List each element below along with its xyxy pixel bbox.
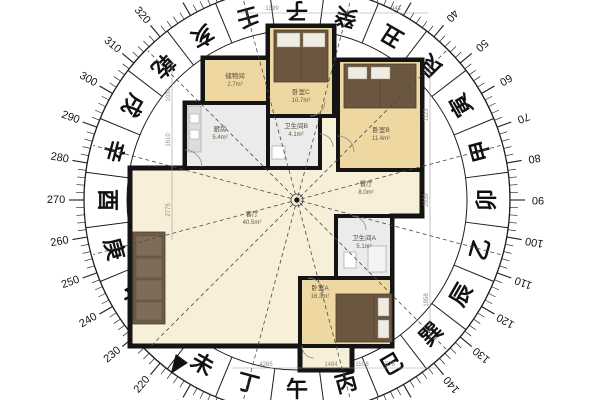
center-point-icon bbox=[294, 197, 299, 202]
tick bbox=[440, 36, 445, 42]
mountain-character: 亥 bbox=[186, 19, 218, 53]
tick bbox=[455, 52, 461, 57]
tick bbox=[98, 103, 105, 107]
tick bbox=[485, 300, 492, 304]
degree-label: 260 bbox=[50, 234, 70, 249]
bed-bedroom-b bbox=[344, 64, 416, 108]
tick bbox=[508, 230, 516, 231]
label-bathroom-a-name: 卫生间A bbox=[352, 233, 377, 242]
segment-divider bbox=[100, 118, 140, 134]
floorplan: 储物间 2.7m² 卧室C 10.7m² 厨房 5.4m² 卫生间B 4.1m²… bbox=[130, 6, 438, 370]
tick bbox=[180, 381, 184, 388]
tick bbox=[384, 0, 387, 5]
degree-label: 290 bbox=[60, 109, 81, 127]
tick bbox=[207, 0, 210, 5]
tick bbox=[81, 244, 89, 246]
tick bbox=[485, 96, 492, 100]
degree-label: 250 bbox=[60, 274, 81, 292]
segment-divider bbox=[466, 172, 509, 178]
tick bbox=[95, 110, 102, 113]
degree-label: 140 bbox=[441, 374, 462, 396]
tick bbox=[488, 293, 495, 297]
label-kitchen-name: 厨房 bbox=[214, 124, 227, 133]
label-bedroom-b-name: 卧室B bbox=[372, 125, 389, 134]
degree-label: 60 bbox=[497, 71, 514, 88]
tick bbox=[143, 41, 149, 47]
degree-label: 270 bbox=[47, 194, 65, 206]
dim-bottom-3: 1598 bbox=[355, 362, 369, 368]
dim-left-3: 2775 bbox=[166, 203, 172, 217]
tick bbox=[100, 86, 113, 94]
segment-divider bbox=[466, 222, 509, 228]
label-bathroom-b-name: 卫生间B bbox=[284, 121, 308, 130]
tick bbox=[481, 86, 494, 94]
dim-top-2: 941 bbox=[391, 6, 402, 12]
tick bbox=[87, 132, 95, 134]
dim-left-2: 1610 bbox=[166, 133, 172, 147]
kitchen-counter bbox=[188, 106, 201, 152]
tick bbox=[87, 266, 95, 268]
degree-label: 320 bbox=[132, 4, 153, 26]
bed-bedroom-c bbox=[274, 30, 328, 82]
tick bbox=[85, 259, 93, 261]
mountain-character: 辰 bbox=[445, 279, 479, 311]
degree-label: 90 bbox=[532, 194, 544, 206]
tick bbox=[78, 169, 86, 170]
tick bbox=[422, 21, 427, 27]
tick bbox=[509, 215, 517, 216]
tick bbox=[149, 358, 154, 364]
dim-left-1: 1038 bbox=[166, 88, 172, 102]
tick bbox=[102, 96, 109, 100]
tick bbox=[500, 132, 508, 134]
tick bbox=[416, 17, 420, 24]
tick bbox=[504, 147, 512, 149]
label-dining-area: 8.0m² bbox=[358, 190, 373, 196]
degree-label: 240 bbox=[77, 311, 99, 331]
tick bbox=[492, 287, 499, 290]
tick bbox=[497, 122, 511, 127]
tick bbox=[207, 395, 210, 400]
tick bbox=[404, 384, 412, 397]
tick bbox=[138, 46, 144, 52]
tick bbox=[509, 177, 517, 178]
tick bbox=[410, 381, 414, 388]
tick bbox=[474, 76, 481, 80]
tick bbox=[83, 252, 91, 254]
label-living-area: 40.5m² bbox=[243, 220, 262, 226]
sofa bbox=[133, 232, 165, 324]
tick bbox=[422, 372, 427, 378]
tick bbox=[77, 215, 85, 216]
dim-top-1: 1399 bbox=[265, 6, 279, 12]
tick bbox=[83, 147, 91, 149]
tick bbox=[507, 237, 522, 240]
mountain-character: 寅 bbox=[445, 89, 479, 121]
degree-label: 80 bbox=[527, 151, 541, 165]
label-storage-name: 储物间 bbox=[225, 71, 245, 80]
tick bbox=[434, 363, 444, 374]
degree-label: 310 bbox=[102, 35, 124, 56]
tick bbox=[180, 13, 184, 20]
tick bbox=[98, 293, 105, 297]
tick bbox=[450, 46, 456, 52]
label-bedroom-a-area: 16.3m² bbox=[311, 294, 330, 300]
tick bbox=[161, 368, 166, 374]
dim-right-3: 1858 bbox=[424, 293, 430, 307]
tick bbox=[460, 53, 471, 63]
mountain-character: 戌 bbox=[116, 89, 150, 121]
tick bbox=[478, 83, 485, 87]
tick bbox=[504, 252, 512, 254]
degree-label: 230 bbox=[101, 344, 123, 365]
tick bbox=[214, 0, 217, 3]
dim-bottom-4: 576 bbox=[385, 362, 396, 368]
tick bbox=[474, 319, 481, 323]
tick bbox=[494, 280, 501, 283]
segment-divider bbox=[269, 369, 275, 400]
tick bbox=[110, 313, 117, 317]
tick bbox=[450, 348, 456, 354]
tick bbox=[502, 259, 510, 261]
tick bbox=[138, 348, 144, 354]
tick bbox=[114, 76, 121, 80]
segment-divider bbox=[319, 369, 325, 400]
tick bbox=[410, 13, 414, 20]
label-kitchen-area: 5.4m² bbox=[212, 135, 227, 141]
tick bbox=[455, 343, 461, 348]
tick bbox=[505, 244, 513, 246]
tick bbox=[150, 25, 160, 36]
segment-divider bbox=[454, 118, 494, 134]
tick bbox=[81, 154, 89, 156]
degree-label: 50 bbox=[473, 37, 490, 54]
tick bbox=[110, 83, 117, 87]
room-storage bbox=[203, 58, 268, 103]
degree-label: 100 bbox=[524, 234, 544, 249]
segment-divider bbox=[215, 357, 231, 397]
tick bbox=[173, 17, 177, 24]
mountain-character: 子 bbox=[286, 0, 308, 23]
tick bbox=[488, 103, 495, 107]
toilet-icon bbox=[344, 252, 356, 268]
label-bathroom-b-area: 4.1m² bbox=[288, 132, 303, 138]
label-bedroom-b-area: 11.4m² bbox=[372, 136, 390, 142]
tick bbox=[102, 300, 109, 304]
mountain-character: 丙 bbox=[332, 368, 360, 399]
tick bbox=[123, 64, 129, 69]
tick bbox=[478, 313, 485, 317]
dim-bottom-1: 4265 bbox=[259, 362, 273, 368]
tick bbox=[390, 391, 394, 398]
tick bbox=[167, 21, 172, 27]
segment-divider bbox=[86, 172, 129, 178]
tick bbox=[161, 26, 166, 32]
degree-label: 220 bbox=[132, 374, 153, 396]
tick bbox=[507, 160, 522, 163]
tick bbox=[509, 222, 517, 223]
degree-label: 130 bbox=[471, 344, 493, 365]
dim-right-2: 2939 bbox=[424, 193, 430, 207]
tick bbox=[149, 36, 154, 42]
tick bbox=[509, 185, 517, 186]
tick bbox=[193, 388, 197, 395]
tick bbox=[143, 353, 149, 359]
segment-divider bbox=[454, 265, 494, 281]
degree-label: 330 bbox=[167, 0, 187, 2]
degree-label: 280 bbox=[50, 151, 70, 166]
tick bbox=[95, 287, 102, 290]
tick bbox=[497, 273, 511, 278]
tick bbox=[173, 377, 177, 384]
label-bedroom-c-name: 卧室C bbox=[292, 87, 310, 96]
tick bbox=[183, 384, 191, 397]
tick bbox=[72, 160, 87, 163]
tick bbox=[118, 70, 124, 75]
degree-label: 40 bbox=[443, 7, 460, 24]
segment-divider bbox=[362, 3, 378, 43]
degree-label: 120 bbox=[495, 311, 517, 331]
tick bbox=[200, 391, 204, 398]
tick bbox=[78, 230, 86, 231]
segment-divider bbox=[215, 3, 231, 43]
tick bbox=[397, 388, 401, 395]
degree-label: 300 bbox=[77, 70, 99, 90]
tick bbox=[384, 395, 387, 400]
tick bbox=[428, 26, 433, 32]
compass-needle-icon bbox=[171, 354, 188, 374]
tick bbox=[100, 307, 113, 315]
segment-divider bbox=[86, 222, 129, 228]
tick bbox=[77, 177, 85, 178]
tick bbox=[122, 53, 133, 63]
label-bathroom-a-area: 5.1m² bbox=[356, 244, 371, 250]
dim-bottom-2: 1484 bbox=[324, 362, 338, 368]
label-bedroom-c-area: 10.7m² bbox=[292, 98, 311, 104]
tick bbox=[193, 5, 197, 12]
tick bbox=[92, 117, 99, 120]
mountain-character: 酉 bbox=[94, 189, 120, 211]
tick bbox=[77, 222, 85, 223]
tick bbox=[183, 3, 191, 16]
degree-label: 70 bbox=[516, 110, 532, 125]
tick bbox=[469, 325, 475, 330]
tick bbox=[85, 139, 93, 141]
tick bbox=[460, 337, 471, 347]
tick bbox=[494, 117, 501, 120]
tick bbox=[416, 377, 420, 384]
tick bbox=[434, 25, 444, 36]
degree-label: 110 bbox=[513, 274, 534, 291]
mountain-character: 午 bbox=[286, 377, 308, 400]
mountain-character: 丑 bbox=[376, 19, 408, 53]
bed-bedroom-a bbox=[336, 294, 392, 342]
luopan-floorplan-diagram: 0102030405060708090100110120130140150160… bbox=[0, 0, 600, 400]
tick bbox=[465, 64, 471, 69]
tick bbox=[505, 154, 513, 156]
tick bbox=[469, 70, 475, 75]
tick bbox=[114, 319, 121, 323]
tick bbox=[465, 331, 471, 336]
dim-right-1: 1123 bbox=[424, 108, 430, 122]
tick bbox=[377, 0, 380, 3]
tick bbox=[508, 169, 516, 170]
tick bbox=[133, 52, 139, 57]
tick bbox=[492, 110, 499, 113]
washer-icon bbox=[272, 146, 285, 159]
scene-canvas: 0102030405060708090100110120130140150160… bbox=[0, 0, 600, 400]
mountain-character: 卯 bbox=[474, 189, 500, 211]
tick bbox=[502, 139, 510, 141]
tick bbox=[83, 122, 97, 127]
tick bbox=[92, 280, 99, 283]
tick bbox=[500, 266, 508, 268]
mountain-character: 未 bbox=[186, 348, 218, 382]
tick bbox=[200, 1, 204, 8]
tick bbox=[118, 325, 124, 330]
tick bbox=[72, 237, 87, 240]
tick bbox=[428, 368, 433, 374]
tick bbox=[77, 185, 85, 186]
tick bbox=[83, 273, 97, 278]
tick bbox=[404, 3, 412, 16]
label-storage-area: 2.7m² bbox=[227, 82, 242, 88]
tick bbox=[445, 353, 451, 359]
tick bbox=[481, 307, 494, 315]
tick bbox=[440, 358, 445, 364]
tick bbox=[445, 41, 451, 47]
tick bbox=[150, 363, 160, 374]
